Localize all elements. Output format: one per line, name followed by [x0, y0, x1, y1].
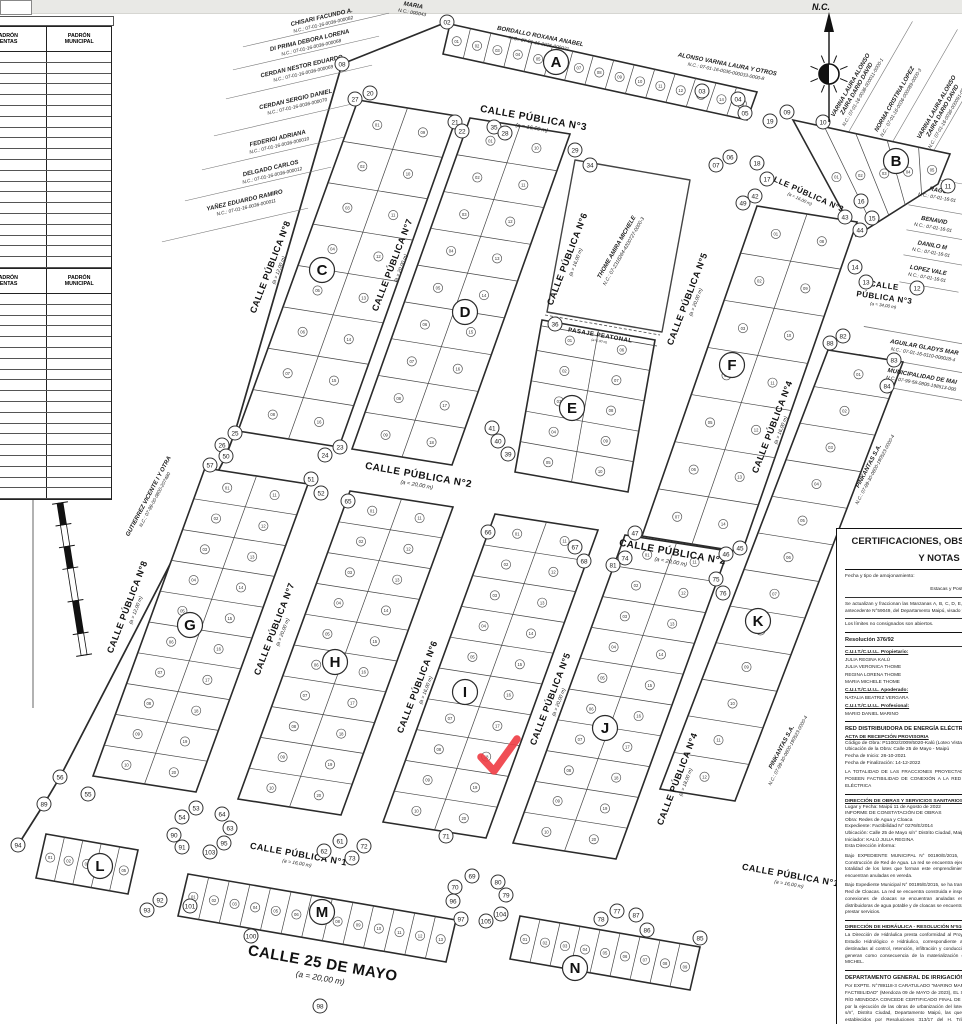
lot-number: 05 — [708, 420, 713, 425]
padron-empty-row — [0, 52, 111, 63]
lot-number: 05 — [930, 168, 935, 173]
lot-number: 13 — [495, 256, 500, 261]
lot-number: 08 — [396, 396, 401, 401]
padron-empty-row — [0, 488, 111, 499]
vertex-number: 36 — [551, 321, 559, 328]
vertex-marker: 41 — [485, 421, 499, 435]
vertex-number: 90 — [170, 832, 178, 839]
lot-number: 20 — [461, 816, 466, 821]
lot-number: 04 — [515, 52, 520, 57]
lot-number: 19 — [328, 762, 333, 767]
lot-number: 09 — [356, 923, 361, 928]
vertex-number: 02 — [443, 19, 451, 26]
vertex-marker: 85 — [693, 931, 707, 945]
padron-empty-row — [0, 106, 111, 117]
red-electrica-heading: RED DISTRIBUIDORA DE ENERGÍA ELÉCTRICA — [845, 726, 962, 732]
vertex-marker: 103 — [203, 845, 217, 859]
hidraulica-paragraph: La Dirección de Hidráulica presta confor… — [845, 932, 962, 966]
block-letter: C — [317, 262, 328, 279]
lot-number: 05 — [315, 288, 320, 293]
vertex-number: 43 — [841, 214, 849, 221]
vertex-number: 09 — [783, 109, 791, 116]
vertex-marker: 07 — [709, 158, 723, 172]
owner-label: DANILO MN.C.: 07-01-16-01 — [912, 240, 952, 260]
vertex-number: 67 — [571, 544, 579, 551]
vertex-number: 91 — [178, 844, 186, 851]
lot-number: 20 — [171, 770, 176, 775]
lot-number: 03 — [232, 901, 237, 906]
vertex-marker: 23 — [333, 440, 347, 454]
vertex-number: 101 — [185, 903, 196, 910]
vertex-number: 70 — [451, 884, 459, 891]
padron-empty-row — [0, 456, 111, 467]
vertex-number: 66 — [484, 529, 492, 536]
lot-number: 04 — [253, 905, 258, 910]
lot-number: 03 — [882, 171, 887, 176]
lot-number: 09 — [617, 75, 622, 80]
lot-number: 09 — [803, 286, 808, 291]
lot-number: 09 — [383, 433, 388, 438]
vertex-marker: 13 — [859, 275, 873, 289]
vertex-number: 71 — [442, 833, 450, 840]
vertex-marker: 96 — [446, 894, 460, 908]
acta-heading: ACTA DE RECEPCIÓN PROVISORIA — [845, 735, 962, 740]
vertex-marker: 39 — [501, 447, 515, 461]
padron-municipal-header: PADRÓN MUNICIPAL — [47, 27, 111, 51]
lot-number: 07 — [772, 591, 777, 596]
lot-number: 05 — [180, 609, 185, 614]
vertex-marker: 28 — [498, 126, 512, 140]
vertex-number: 97 — [457, 916, 465, 923]
vertex-number: 72 — [360, 843, 368, 850]
padron-empty-row — [0, 182, 111, 193]
block-letter: I — [463, 684, 467, 701]
hidraulica-heading: DIRECCIÓN DE HIDRÁULICA - RESOLUCIÓN N°5… — [845, 925, 962, 930]
vertex-number: 81 — [609, 562, 617, 569]
propietario-row: JULIA REGINA KALÚ27-04.172.750-1 — [845, 656, 962, 663]
block-letter: D — [460, 304, 471, 321]
vertex-number: 49 — [739, 200, 747, 207]
vertex-number: 65 — [344, 498, 352, 505]
vertex-number: 42 — [751, 193, 759, 200]
lot-number: 09 — [744, 665, 749, 670]
vertex-number: 18 — [753, 160, 761, 167]
lot-number: 08 — [335, 919, 340, 924]
vertex-marker: 57 — [203, 458, 217, 472]
vertex-marker: 100 — [244, 929, 258, 943]
lot-number: 04 — [583, 947, 588, 952]
propietario-row: MARIA MICHELE THOME27-27.590.839-5 — [845, 678, 962, 685]
lot-number: 03 — [563, 944, 568, 949]
vertex-number: 61 — [336, 838, 344, 845]
vertex-marker: 88 — [823, 336, 837, 350]
vertex-marker: 66 — [481, 525, 495, 539]
lot-number: 04 — [481, 624, 486, 629]
lot-number: 14 — [659, 652, 664, 657]
lot-number: 16 — [506, 693, 511, 698]
vertex-marker: 68 — [577, 554, 591, 568]
vertex-number: 25 — [231, 430, 239, 437]
vertex-number: 44 — [856, 227, 864, 234]
lot-number: 05 — [536, 57, 541, 62]
block-letter: G — [184, 617, 196, 634]
lot-number: 01 — [773, 231, 778, 236]
lot-number: 05 — [436, 285, 441, 290]
lot-number: 10 — [414, 809, 419, 814]
doss-paragraph-2: Bajo Expediente Municipal N° 00195/E/201… — [845, 882, 962, 916]
street-label: PÚBLICA N°3(a = 34,00 m) — [855, 289, 913, 312]
vertex-number: 105 — [481, 918, 492, 925]
lot-number: 07 — [303, 693, 308, 698]
vertex-number: 73 — [348, 855, 356, 862]
vertex-marker: 47 — [628, 526, 642, 540]
street-label: CALLE PÚBLICA N°1(a = 16,00 m) — [740, 861, 840, 896]
acta-detail-line: Fecha de Finalización: 14-12-2022 — [845, 761, 962, 768]
padron-empty-row — [0, 370, 111, 381]
lot-number: 19 — [473, 785, 478, 790]
lot-number: 05 — [121, 868, 126, 873]
lot-number: 10 — [406, 171, 411, 176]
apoderado-row: NATALIA BEATRIZ VERGARA27-28.279.159-7 — [845, 694, 962, 701]
vertex-number: 94 — [14, 842, 22, 849]
lot-number: 10 — [534, 146, 539, 151]
lot-number: 02 — [475, 175, 480, 180]
vertex-number: 64 — [218, 811, 226, 818]
vertex-marker: 29 — [568, 143, 582, 157]
lot-number: 12 — [376, 254, 381, 259]
padron-empty-row — [0, 391, 111, 402]
owner-label: DELGADO CARLOSN.C.: 07-01-16-0036-000012 — [240, 159, 303, 186]
lot-number: 06 — [589, 706, 594, 711]
block-letter: K — [753, 613, 764, 630]
padron-table-1-rows — [0, 52, 111, 268]
lot-number: 15 — [647, 683, 652, 688]
acta-detail-line: Ubicación de la Obra: Calle 25 de Mayo -… — [845, 747, 962, 754]
lot-number: 18 — [429, 440, 434, 445]
vertex-number: 82 — [839, 333, 847, 340]
padron-empty-row — [0, 63, 111, 74]
lot-number: 20 — [316, 793, 321, 798]
lot-number: 07 — [285, 371, 290, 376]
vertex-marker: 65 — [341, 494, 355, 508]
lot-number: 01 — [191, 894, 196, 899]
lot-number: 10 — [638, 79, 643, 84]
padron-table-1: PADRÓN RENTAS PADRÓN MUNICIPAL — [0, 26, 112, 269]
vertex-marker: 97 — [454, 912, 468, 926]
vertex-marker: 15 — [865, 211, 879, 225]
vertex-marker: 86 — [640, 923, 654, 937]
vertex-marker: 11 — [941, 179, 955, 193]
owner-label: FEDERIGI ADRIANAN.C.: 07-01-16-0036-0000… — [247, 129, 310, 156]
vertex-marker: 25 — [228, 426, 242, 440]
padron-empty-row — [0, 380, 111, 391]
vertex-marker: 34 — [583, 158, 597, 172]
lot-number: 05 — [800, 518, 805, 523]
block-N: 010203040506070809N — [510, 916, 700, 990]
vertex-number: 83 — [890, 357, 898, 364]
limites-note: Los límites no consignados son abiertos. — [845, 622, 962, 629]
padron-empty-row — [0, 413, 111, 424]
vertex-number: 26 — [218, 442, 226, 449]
vertex-marker: 27 — [348, 92, 362, 106]
vertex-marker: 14 — [848, 260, 862, 274]
vertex-marker: 54 — [175, 810, 189, 824]
lot-number: 08 — [597, 70, 602, 75]
vertex-marker: 82 — [836, 329, 850, 343]
padron-empty-row — [0, 246, 111, 257]
lot-number: 07 — [614, 378, 619, 383]
vertex-marker: 61 — [333, 834, 347, 848]
vertex-marker: 104 — [494, 907, 508, 921]
vertex-number: 05 — [741, 110, 749, 117]
street-label: CALLE — [869, 279, 899, 292]
lot-number: 18 — [614, 775, 619, 780]
lot-number: 06 — [300, 329, 305, 334]
padron-table-2: PADRÓN RENTAS PADRÓN MUNICIPAL — [0, 268, 112, 500]
lot-number: 17 — [495, 723, 500, 728]
block-letter: N — [570, 960, 581, 977]
vertex-marker: 91 — [175, 840, 189, 854]
lot-number: 11 — [716, 738, 721, 743]
owner-name: GUTIERREZ VICENTE I Y OTRA — [125, 455, 172, 537]
lot-number: 10 — [377, 926, 382, 931]
lot-number: 09 — [280, 755, 285, 760]
block-letter: L — [95, 858, 104, 875]
lot-number: 10 — [269, 786, 274, 791]
vertex-marker: 95 — [217, 836, 231, 850]
vertex-number: 35 — [490, 124, 498, 131]
padron-empty-row — [0, 203, 111, 214]
lot-number: 02 — [212, 898, 217, 903]
vertex-number: 23 — [336, 444, 344, 451]
lot-number: 08 — [291, 724, 296, 729]
lot-number: 08 — [609, 408, 614, 413]
propietarios-list: JULIA REGINA KALÚ27-04.172.750-1JULIA VE… — [845, 656, 962, 684]
vertex-marker: 40 — [491, 434, 505, 448]
doss-detail-line: Esta Dirección informa: — [845, 844, 962, 851]
owner-label: VARINA LAURA ALONSOZAIRA DARIO DAVIDN.C.… — [915, 72, 962, 150]
lot-number: 02 — [214, 516, 219, 521]
lot-number: 07 — [158, 670, 163, 675]
vertex-marker: 51 — [304, 472, 318, 486]
lot-number: 07 — [578, 737, 583, 742]
vertex-marker: 20 — [363, 86, 377, 100]
vertex-marker: 05 — [738, 106, 752, 120]
lot-number: 06 — [314, 662, 319, 667]
vertex-marker: 19 — [763, 114, 777, 128]
vertex-number: 54 — [178, 814, 186, 821]
vertex-marker: 71 — [439, 829, 453, 843]
owner-label: BENAVIDN.C.: 07-01-16-01 — [914, 215, 954, 235]
lot-number: 14 — [529, 631, 534, 636]
vertex-marker: 73 — [345, 851, 359, 865]
lot-number: 14 — [719, 97, 724, 102]
lot-number: 10 — [730, 701, 735, 706]
vertex-number: 04 — [734, 96, 742, 103]
vertex-number: 28 — [501, 130, 509, 137]
vertex-marker: 76 — [716, 586, 730, 600]
irrigacion-heading: DEPARTAMENTO GENERAL DE IRRIGACIÓN — [845, 975, 962, 981]
vertex-marker: 98 — [313, 999, 327, 1013]
lot-number: 04 — [551, 429, 556, 434]
lot-number: 02 — [858, 173, 863, 178]
padron-empty-row — [0, 74, 111, 85]
lot-number: 04 — [611, 645, 616, 650]
lot-number: 08 — [270, 412, 275, 417]
profesional-row: MARIO DANIEL MARINO20-11.091.234-5 — [845, 710, 962, 717]
vertex-marker: 06 — [723, 150, 737, 164]
lot-number: 04 — [330, 247, 335, 252]
lot-number: 10 — [787, 333, 792, 338]
owner-separator-line — [906, 230, 962, 240]
lot-number: 02 — [543, 940, 548, 945]
vertex-number: 07 — [712, 162, 720, 169]
lot-number: 02 — [475, 43, 480, 48]
lot-number: 11 — [658, 84, 663, 89]
vertex-number: 08 — [338, 61, 346, 68]
lot-number: 12 — [418, 933, 423, 938]
vertex-number: 68 — [580, 558, 588, 565]
propietario-row: JULIA VERONICA THOME27-25.564.256-1 — [845, 663, 962, 670]
vertex-number: 104 — [496, 911, 507, 918]
lot-number: 07 — [643, 957, 648, 962]
lot-number: 07 — [409, 359, 414, 364]
vertex-marker: 46 — [719, 547, 733, 561]
padron-empty-row — [0, 348, 111, 359]
cuit-profesional-label: C.U.I.T./C.U.I.L. Profesional: — [845, 704, 962, 709]
padron-empty-row — [0, 95, 111, 106]
lot-number: 09 — [425, 778, 430, 783]
padron-empty-row — [0, 117, 111, 128]
vertex-marker: 75 — [709, 572, 723, 586]
lot-number: 14 — [346, 337, 351, 342]
vertex-number: 92 — [156, 897, 164, 904]
vertex-number: 53 — [192, 805, 200, 812]
lot-number: 14 — [721, 522, 726, 527]
padron-empty-row — [0, 149, 111, 160]
lot-number: 02 — [757, 279, 762, 284]
vertex-number: 87 — [632, 912, 640, 919]
padron-empty-row — [0, 160, 111, 171]
vertex-number: 12 — [913, 285, 921, 292]
vertex-number: 77 — [613, 908, 621, 915]
scale-bar — [52, 502, 92, 657]
north-label-fragment: N.C. — [812, 2, 830, 12]
lot-number: 15 — [517, 662, 522, 667]
vertex-number: 11 — [945, 183, 952, 190]
vertex-number: 34 — [586, 162, 594, 169]
block-letter: B — [891, 153, 902, 170]
lot-number: 12 — [508, 219, 513, 224]
padron-rentas-header: PADRÓN RENTAS — [0, 269, 47, 293]
lot-number: 06 — [619, 347, 624, 352]
vertex-number: 03 — [698, 88, 706, 95]
lot-number: 05 — [325, 632, 330, 637]
lot-number: 04 — [906, 169, 911, 174]
lot-number: 02 — [634, 583, 639, 588]
owner-nc-number: N.C.: 07-01-16-0036-000089-0000-3 — [879, 67, 923, 138]
lot-number: 05 — [273, 909, 278, 914]
lot-number: 09 — [555, 799, 560, 804]
owner-label: PINKANTAS S.A.N.C.: 07-99-30-0800-190523… — [761, 711, 809, 786]
vertex-marker: 04 — [731, 92, 745, 106]
lot-number: 05 — [470, 655, 475, 660]
vertex-marker: 80 — [491, 875, 505, 889]
padron-empty-row — [0, 84, 111, 95]
vertex-number: 15 — [868, 215, 876, 222]
lot-number: 01 — [370, 508, 375, 513]
vertex-number: 27 — [351, 96, 359, 103]
padron-empty-row — [0, 424, 111, 435]
lot-number: 16 — [317, 420, 322, 425]
block-letter: M — [316, 904, 329, 921]
lot-number: 17 — [625, 744, 630, 749]
lot-number: 13 — [438, 937, 443, 942]
lot-number: 12 — [678, 88, 683, 93]
lot-number: 11 — [391, 213, 396, 218]
lot-number: 16 — [216, 647, 221, 652]
lot-number: 14 — [384, 608, 389, 613]
block-L: 0102030405L — [36, 834, 138, 894]
vertex-marker: 89 — [37, 797, 51, 811]
lot-number: 08 — [819, 239, 824, 244]
vertex-marker: 22 — [455, 124, 469, 138]
lot-number: 10 — [544, 830, 549, 835]
vertex-number: 88 — [826, 340, 834, 347]
vertex-number: 56 — [56, 774, 64, 781]
vertex-number: 52 — [317, 490, 325, 497]
lot-number: 04 — [449, 249, 454, 254]
vertex-marker: 79 — [499, 888, 513, 902]
lot-number: 10 — [124, 763, 129, 768]
vertex-marker: 83 — [887, 353, 901, 367]
lot-number: 06 — [691, 467, 696, 472]
lot-number: 02 — [842, 408, 847, 413]
lot-number: 01 — [454, 39, 459, 44]
lot-number: 06 — [623, 954, 628, 959]
vertex-marker: 43 — [838, 210, 852, 224]
vertex-marker: 03 — [695, 84, 709, 98]
lot-number: 01 — [834, 175, 839, 180]
lot-number: 12 — [406, 546, 411, 551]
vertex-number: 47 — [631, 530, 639, 537]
lot-number: 11 — [562, 539, 567, 544]
lot-number: 03 — [492, 593, 497, 598]
vertex-marker: 84 — [880, 379, 894, 393]
vertex-marker: 18 — [750, 156, 764, 170]
lot-number: 06 — [294, 912, 299, 917]
vertex-number: 57 — [206, 462, 214, 469]
amojonamiento-label: Fecha y tipo de amojonamiento: — [845, 574, 962, 581]
vertex-number: 51 — [307, 476, 315, 483]
padron-empty-row — [0, 171, 111, 182]
vertex-number: 40 — [494, 438, 502, 445]
lot-number: 01 — [515, 531, 520, 536]
lot-number: 02 — [562, 369, 567, 374]
vertex-marker: 69 — [465, 869, 479, 883]
vertex-number: 69 — [468, 873, 476, 880]
lot-number: 03 — [495, 48, 500, 53]
vertex-marker: 87 — [629, 908, 643, 922]
owner-label: MUNICIPALIDAD DE MAIN.C.: 07-99-58-0800-… — [886, 368, 958, 393]
lot-number: 15 — [227, 616, 232, 621]
vertex-number: 06 — [726, 154, 734, 161]
street-name: CALLE — [869, 279, 899, 292]
red-electrica-note: LA TOTALIDAD DE LAS FRACCIONES PROYECTAD… — [845, 769, 962, 789]
padron-empty-row — [0, 214, 111, 225]
lot-number: 13 — [361, 295, 366, 300]
cuit-propietario-label: C.U.I.T./C.U.I.L. Propietario: — [845, 650, 962, 655]
